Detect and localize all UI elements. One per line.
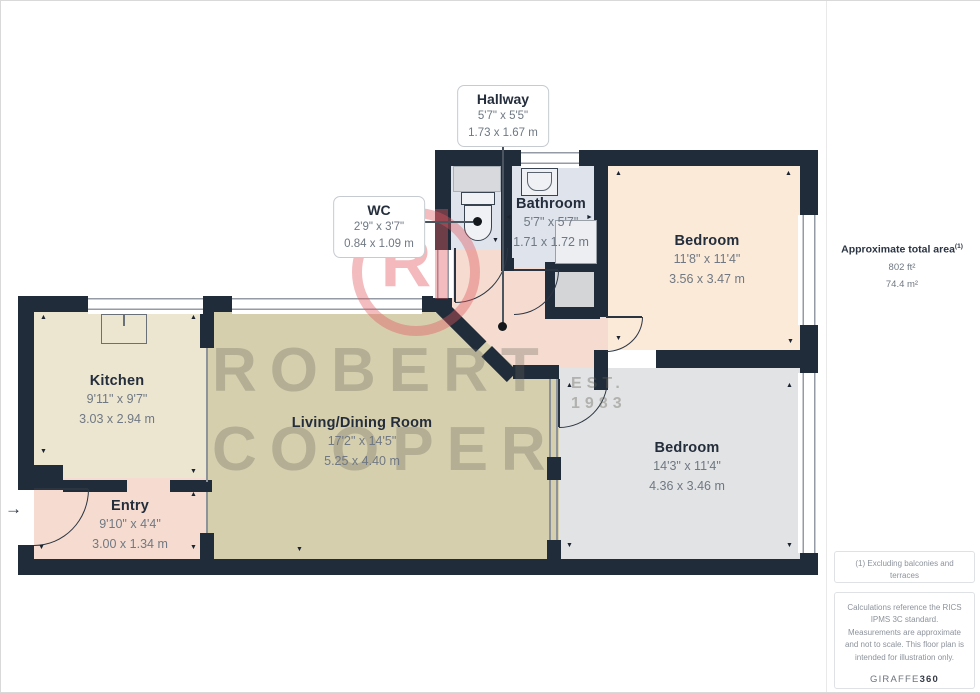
- wc-name: WC: [344, 202, 414, 218]
- bathroom-dims-ft: 5'7" x 5'7": [513, 214, 589, 232]
- living-name: Living/Dining Room: [292, 415, 433, 431]
- total-area-m: 74.4 m²: [828, 279, 976, 290]
- window-hallway-top: [521, 148, 579, 168]
- wall-top: [435, 150, 818, 166]
- partition-bed2-a1: [549, 379, 551, 457]
- wall-left-step: [34, 465, 63, 490]
- measure-arrow-icon: ▼: [492, 237, 499, 244]
- wall-closet-bottom: [545, 307, 600, 319]
- living-label: Living/Dining Room 17'2" x 14'5" 5.25 x …: [292, 415, 433, 471]
- brand-logo: GIRAFFE360: [844, 673, 965, 688]
- floorplan-canvas: → R ROBERT COOPER EST. 1983 Hallway 5'7"…: [0, 0, 826, 693]
- wc-counter: [453, 166, 501, 192]
- partition-bed2-b1: [549, 480, 551, 540]
- measure-arrow-icon: ▲: [785, 170, 792, 177]
- total-area-footnote-ref: (1): [955, 243, 963, 250]
- bedroom2-dims-m: 4.36 x 3.46 m: [649, 478, 725, 496]
- measure-arrow-icon: ▼: [40, 448, 47, 455]
- bedroom1-name: Bedroom: [669, 233, 745, 249]
- total-area-title-text: Approximate total area: [841, 244, 955, 256]
- toilet-dot: [473, 217, 482, 226]
- measure-arrow-icon: ▲: [615, 170, 622, 177]
- disclaimer-box: Calculations reference the RICS IPMS 3C …: [834, 592, 975, 689]
- hallway-dims-ft: 5'7" x 5'5": [468, 108, 538, 124]
- living-dims-ft: 17'2" x 14'5": [292, 433, 433, 451]
- partition-entry-living: [206, 492, 208, 533]
- bedroom1-dims-m: 3.56 x 3.47 m: [669, 271, 745, 289]
- disclaimer-text: Calculations reference the RICS IPMS 3C …: [845, 603, 964, 662]
- wall-kitchen-divider-stub: [200, 312, 214, 348]
- kitchen-dims-m: 3.03 x 2.94 m: [79, 411, 155, 429]
- bedroom2-label: Bedroom 14'3" x 11'4" 4.36 x 3.46 m: [649, 440, 725, 496]
- wall-bed2-partition-bottom: [547, 540, 561, 559]
- wc-dims-m: 0.84 x 1.09 m: [344, 236, 414, 252]
- wc-dims-ft: 2'9" x 3'7": [344, 219, 414, 235]
- bedroom2-name: Bedroom: [649, 440, 725, 456]
- measure-arrow-icon: ▼: [190, 468, 197, 475]
- hallway-leader-dot: [498, 322, 507, 331]
- bathroom-sink-basin: [527, 172, 552, 191]
- brand-name: GIRAFFE: [870, 674, 920, 685]
- floorplan-page: → R ROBERT COOPER EST. 1983 Hallway 5'7"…: [0, 0, 980, 693]
- brand-suffix: 360: [920, 674, 939, 685]
- wc-leader-line: [424, 221, 473, 223]
- measure-arrow-icon: ▼: [296, 546, 303, 553]
- kitchen-sink-tick: [123, 314, 125, 326]
- sidebar-divider: [826, 0, 827, 693]
- window-wc-left: [433, 250, 453, 298]
- page-edge-left: [0, 0, 1, 693]
- closet-floor: [555, 272, 594, 307]
- kitchen-name: Kitchen: [79, 373, 155, 389]
- wall-hall-bottom: [513, 365, 559, 379]
- total-area-ft: 802 ft²: [828, 262, 976, 273]
- measure-arrow-icon: ▼: [566, 542, 573, 549]
- measure-arrow-icon: ▼: [786, 542, 793, 549]
- measure-arrow-icon: ▲: [40, 314, 47, 321]
- entry-label: Entry 9'10" x 4'4" 3.00 x 1.34 m: [92, 498, 168, 554]
- hallway-name: Hallway: [468, 91, 538, 107]
- entry-dims-m: 3.00 x 1.34 m: [92, 536, 168, 554]
- entry-name: Entry: [92, 498, 168, 514]
- kitchen-dims-ft: 9'11" x 9'7": [79, 391, 155, 409]
- window-bedroom1-right: [798, 215, 820, 325]
- wc-label: WC 2'9" x 3'7" 0.84 x 1.09 m: [333, 196, 425, 258]
- wall-left-upper: [18, 296, 34, 490]
- window-kitchen-top: [88, 294, 203, 314]
- living-dims-m: 5.25 x 4.40 m: [292, 453, 433, 471]
- measure-arrow-icon: ▲: [190, 314, 197, 321]
- wall-bed2-partition-mid: [547, 457, 561, 480]
- measure-arrow-icon: ▼: [787, 338, 794, 345]
- kitchen-label: Kitchen 9'11" x 9'7" 3.03 x 2.94 m: [79, 373, 155, 429]
- window-bedroom2-right: [798, 373, 820, 553]
- partition-bed2-b2: [556, 480, 558, 540]
- partition-kitchen-living: [206, 348, 208, 482]
- total-area-block: Approximate total area(1) 802 ft² 74.4 m…: [828, 243, 976, 290]
- bedroom2-dims-ft: 14'3" x 11'4": [649, 458, 725, 476]
- page-edge-top: [0, 0, 980, 1]
- hallway-dims-m: 1.73 x 1.67 m: [468, 125, 538, 141]
- measure-arrow-icon: ▼: [615, 335, 622, 342]
- measure-arrow-icon: ◄: [505, 214, 512, 221]
- bedroom1-dims-ft: 11'8" x 11'4": [669, 251, 745, 269]
- measure-arrow-icon: ▼: [190, 544, 197, 551]
- window-living-top: [232, 294, 422, 314]
- wall-bottom: [18, 559, 818, 575]
- measure-arrow-icon: ▲: [786, 382, 793, 389]
- wall-entry-right-stub: [200, 533, 214, 559]
- entry-dims-ft: 9'10" x 4'4": [92, 516, 168, 534]
- hallway-leader-line: [502, 143, 504, 326]
- bathroom-label: Bathroom 5'7" x 5'7" 1.71 x 1.72 m: [513, 196, 589, 252]
- footnote-box: (1) Excluding balconies and terraces: [834, 551, 975, 583]
- toilet-cistern: [461, 192, 495, 205]
- bathroom-name: Bathroom: [513, 196, 589, 212]
- measure-arrow-icon: ▲: [566, 382, 573, 389]
- entry-direction-arrow: →: [5, 500, 22, 517]
- footnote-text: (1) Excluding balconies and terraces: [855, 559, 953, 580]
- measure-arrow-icon: ▲: [190, 491, 197, 498]
- bedroom1-label: Bedroom 11'8" x 11'4" 3.56 x 3.47 m: [669, 233, 745, 289]
- wall-bed1-bottom: [656, 350, 802, 368]
- total-area-title: Approximate total area(1): [828, 243, 976, 256]
- bathroom-dims-m: 1.71 x 1.72 m: [513, 234, 589, 252]
- measure-arrow-icon: ▼: [38, 544, 45, 551]
- hallway-label: Hallway 5'7" x 5'5" 1.73 x 1.67 m: [457, 85, 549, 147]
